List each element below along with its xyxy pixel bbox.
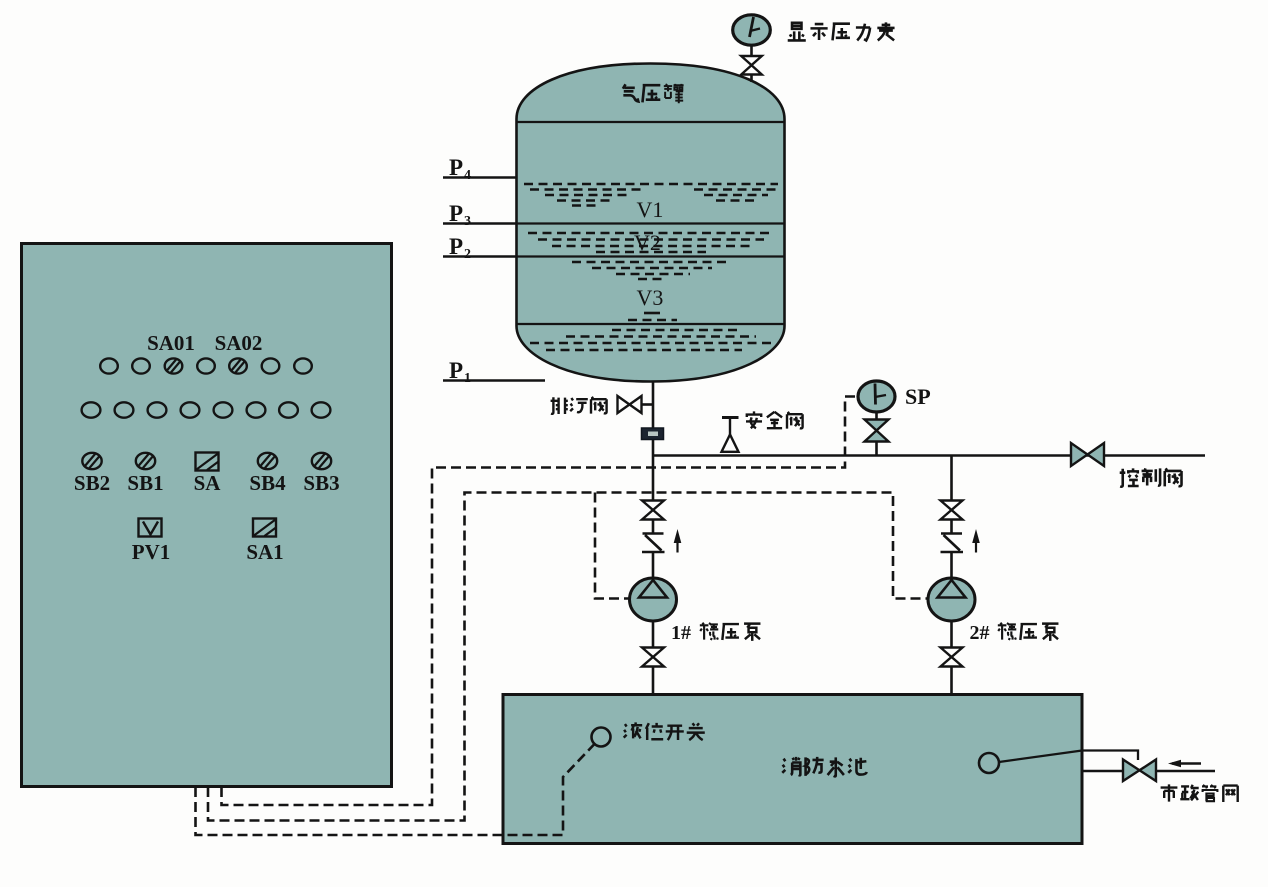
svg-text:SA: SA <box>194 471 222 495</box>
svg-text:SA1: SA1 <box>246 540 283 564</box>
svg-text:1: 1 <box>464 371 471 386</box>
svg-text:SA02: SA02 <box>215 331 263 355</box>
svg-text:P: P <box>449 234 463 259</box>
svg-text:PV1: PV1 <box>132 540 171 564</box>
svg-text:4: 4 <box>464 168 471 183</box>
svg-text:3: 3 <box>464 214 471 229</box>
svg-text:2: 2 <box>464 247 471 262</box>
svg-text:P: P <box>449 358 463 383</box>
svg-text:V2: V2 <box>634 230 661 255</box>
svg-text:SB1: SB1 <box>127 471 163 495</box>
svg-text:SA01: SA01 <box>147 331 195 355</box>
svg-text:SB2: SB2 <box>74 471 110 495</box>
svg-text:V1: V1 <box>637 197 664 222</box>
svg-text:P: P <box>449 201 463 226</box>
svg-text:2#: 2# <box>970 622 990 644</box>
svg-text:SP: SP <box>905 384 931 409</box>
svg-text:SB3: SB3 <box>303 471 339 495</box>
svg-text:SB4: SB4 <box>249 471 286 495</box>
svg-text:1#: 1# <box>671 622 691 644</box>
svg-text:V3: V3 <box>637 285 664 310</box>
svg-text:P: P <box>449 155 463 180</box>
